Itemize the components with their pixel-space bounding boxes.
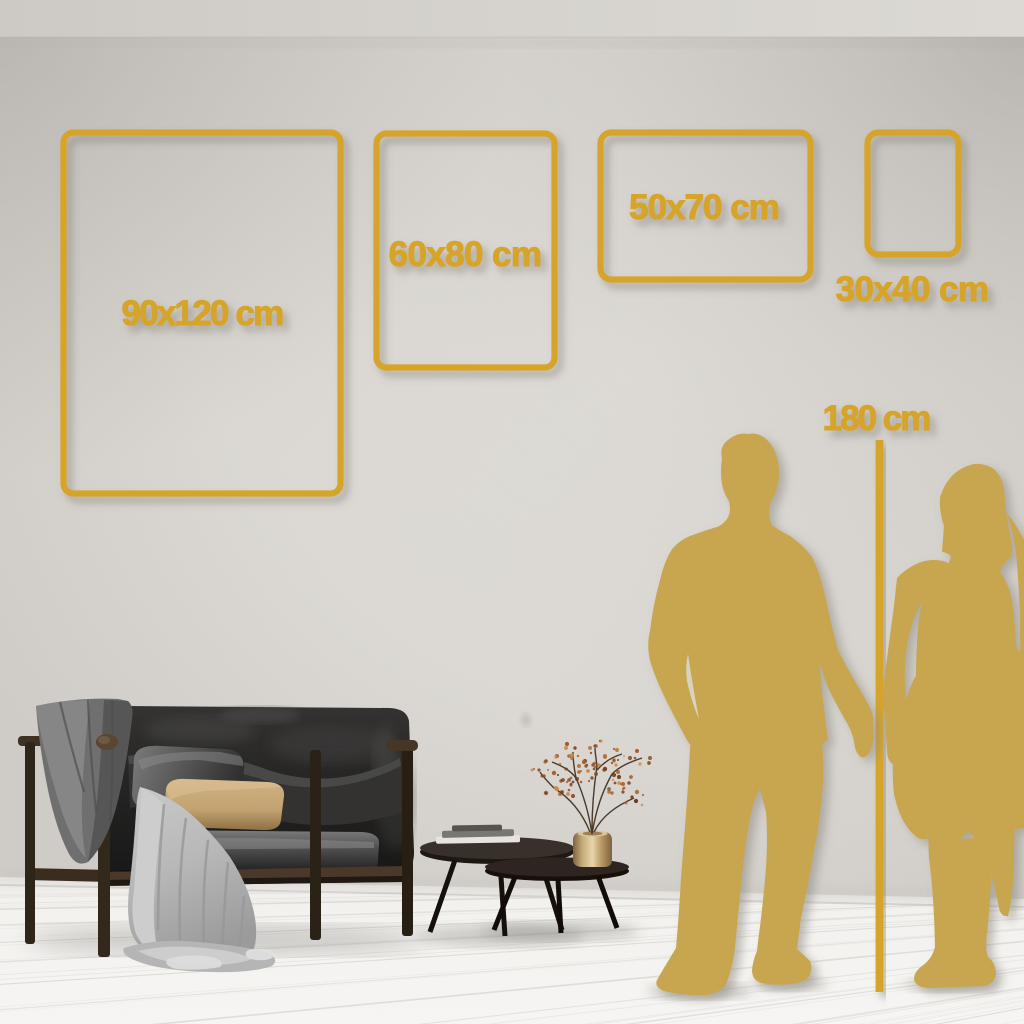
svg-text:90x120 cm: 90x120 cm: [122, 294, 283, 333]
svg-text:50x70 cm: 50x70 cm: [629, 188, 779, 227]
svg-text:30x40 cm: 30x40 cm: [836, 270, 989, 309]
svg-text:60x80 cm: 60x80 cm: [389, 235, 542, 274]
svg-text:180 cm: 180 cm: [823, 399, 930, 438]
